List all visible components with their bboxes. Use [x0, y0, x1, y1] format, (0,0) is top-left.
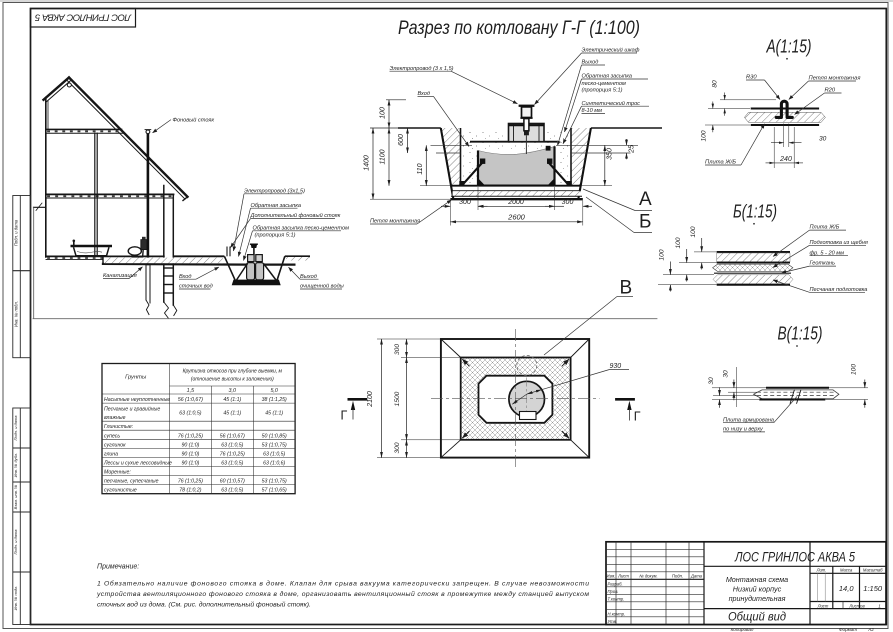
- svg-text:Взам. инв. №: Взам. инв. №: [13, 484, 18, 509]
- svg-text:63 (1:0,6): 63 (1:0,6): [263, 460, 285, 466]
- svg-text:Т.контр.: Т.контр.: [608, 597, 625, 602]
- svg-text:(пропорция 5:1): (пропорция 5:1): [255, 233, 296, 239]
- svg-text:2000: 2000: [507, 199, 524, 206]
- svg-text:Н.контр.: Н.контр.: [608, 612, 626, 617]
- svg-text:63 (1:0,5): 63 (1:0,5): [221, 488, 243, 494]
- svg-text:А(1:15): А(1:15): [766, 36, 812, 57]
- svg-text:сточных вод из дома. (См. рис.: сточных вод из дома. (См. рис. дополните…: [97, 601, 311, 609]
- svg-text:53 (1:0,75): 53 (1:0,75): [262, 442, 287, 448]
- svg-text:Монтажная схема: Монтажная схема: [726, 575, 788, 584]
- svg-text:110: 110: [417, 163, 424, 174]
- svg-text:Глинистые:: Глинистые:: [104, 424, 134, 430]
- svg-text:Подп. и дата: Подп. и дата: [14, 219, 19, 246]
- svg-text:100: 100: [659, 249, 666, 260]
- svg-text:суглинок: суглинок: [104, 442, 126, 448]
- svg-text:60 (1:0,57): 60 (1:0,57): [220, 479, 245, 485]
- svg-text:100: 100: [690, 226, 697, 237]
- svg-text:R30: R30: [746, 75, 757, 81]
- svg-text:глина: глина: [104, 451, 118, 457]
- svg-text:Г: Г: [341, 409, 348, 423]
- svg-text:Петля монтажная: Петля монтажная: [370, 219, 420, 225]
- svg-text:Низкий корпус: Низкий корпус: [733, 585, 782, 594]
- svg-text:А2: А2: [867, 627, 874, 632]
- svg-text:63 (1:0,5): 63 (1:0,5): [221, 460, 243, 466]
- svg-text:80: 80: [712, 80, 719, 88]
- svg-text:Б(1:15): Б(1:15): [733, 201, 777, 222]
- svg-text:(отношение высоты к заложению): (отношение высоты к заложению): [191, 377, 274, 383]
- svg-text:Подп.: Подп.: [672, 574, 683, 579]
- svg-text:240: 240: [779, 156, 792, 163]
- svg-text:Лит.: Лит.: [816, 568, 827, 573]
- svg-text:57 (1:0,65): 57 (1:0,65): [262, 488, 287, 494]
- svg-text:Разрез по котловану Г-Г (1:100: Разрез по котловану Г-Г (1:100): [398, 18, 640, 39]
- svg-text:45 (1:1): 45 (1:1): [223, 397, 241, 403]
- svg-text:песко-цементом: песко-цементом: [582, 81, 627, 87]
- svg-text:30: 30: [819, 135, 827, 142]
- svg-text:300: 300: [562, 199, 574, 206]
- svg-text:№ докум.: № докум.: [639, 574, 657, 579]
- svg-text:Инв. № подл.: Инв. № подл.: [13, 586, 18, 611]
- svg-text:Дата: Дата: [690, 574, 703, 579]
- svg-text:53 (1:0,75): 53 (1:0,75): [262, 479, 287, 485]
- svg-text:100: 100: [380, 107, 387, 119]
- svg-text:В: В: [620, 278, 633, 299]
- svg-text:Лист: Лист: [617, 574, 629, 579]
- svg-text:5,0: 5,0: [270, 388, 278, 394]
- svg-text:Петля монтажная: Петля монтажная: [809, 76, 861, 82]
- svg-text:1400: 1400: [364, 155, 371, 171]
- svg-text:песчаные, супесчаные: песчаные, супесчаные: [104, 479, 159, 485]
- svg-text:ЛОС ГРИНЛОС АКВА 5: ЛОС ГРИНЛОС АКВА 5: [34, 11, 132, 22]
- svg-text:38 (1:1,25): 38 (1:1,25): [262, 397, 287, 403]
- svg-text:Электрический шкаф: Электрический шкаф: [582, 47, 640, 54]
- svg-text:350: 350: [607, 148, 614, 160]
- svg-text:14,0: 14,0: [839, 584, 854, 593]
- svg-text:Песчаные и гравийные: Песчаные и гравийные: [104, 406, 160, 413]
- svg-text:Дополнительный фоновый стояк: Дополнительный фоновый стояк: [250, 212, 341, 219]
- svg-text:90 (1:0): 90 (1:0): [181, 442, 199, 448]
- svg-text:45 (1:1): 45 (1:1): [265, 411, 283, 417]
- svg-text:1500: 1500: [394, 391, 401, 406]
- svg-text:Синтетический трос: Синтетический трос: [582, 100, 641, 107]
- svg-text:300: 300: [394, 344, 401, 355]
- svg-text:300: 300: [459, 199, 471, 206]
- svg-text:90 (1:0): 90 (1:0): [181, 460, 199, 466]
- svg-text:63 (1:0,5): 63 (1:0,5): [221, 442, 243, 448]
- svg-text:Г: Г: [634, 410, 641, 424]
- svg-text:3,0: 3,0: [229, 388, 237, 394]
- svg-text:Формат: Формат: [839, 627, 857, 632]
- svg-text:Подп. и дата: Подп. и дата: [13, 415, 18, 441]
- svg-text:влажные: влажные: [104, 415, 126, 421]
- svg-text:Копировал: Копировал: [731, 627, 754, 632]
- svg-text:Изм.: Изм.: [607, 574, 616, 579]
- svg-text:ЛОС ГРИНЛОС АКВА 5: ЛОС ГРИНЛОС АКВА 5: [734, 550, 855, 565]
- svg-text:Моренные:: Моренные:: [104, 470, 131, 476]
- svg-text:30: 30: [723, 370, 730, 378]
- svg-text:Разраб.: Разраб.: [608, 582, 623, 587]
- svg-text:Листов: Листов: [848, 603, 865, 608]
- svg-text:Пров.: Пров.: [608, 589, 619, 594]
- svg-text:Грунты: Грунты: [125, 375, 147, 381]
- svg-text:1 Обязательно наличие фонового: 1 Обязательно наличие фонового стояка в …: [97, 580, 589, 588]
- svg-text:Крутизна откосов при глубине в: Крутизна откосов при глубине выемки, м: [183, 369, 283, 375]
- svg-text:Плита Ж/Б: Плита Ж/Б: [705, 160, 736, 166]
- svg-text:суглинистые: суглинистые: [104, 488, 137, 494]
- svg-text:Лессы и сухие лессовидные: Лессы и сухие лессовидные: [103, 460, 172, 466]
- svg-text:Фоновый стояк: Фоновый стояк: [173, 117, 215, 124]
- svg-text:50 (1:0,85): 50 (1:0,85): [262, 433, 287, 439]
- svg-text:Масштаб: Масштаб: [863, 568, 883, 573]
- svg-text:1: 1: [878, 603, 880, 608]
- svg-text:Общий вид: Общий вид: [728, 612, 786, 624]
- svg-text:R20: R20: [825, 88, 836, 94]
- svg-text:Инв. № подл.: Инв. № подл.: [14, 301, 19, 327]
- svg-text:76 (1:0,25): 76 (1:0,25): [178, 433, 203, 439]
- svg-text:100: 100: [701, 130, 708, 141]
- svg-text:930: 930: [610, 363, 622, 370]
- svg-text:78 (1:0,2): 78 (1:0,2): [179, 488, 201, 494]
- svg-text:100: 100: [851, 364, 858, 375]
- svg-text:А: А: [639, 189, 652, 210]
- svg-text:2600: 2600: [507, 212, 526, 221]
- svg-text:Б: Б: [639, 212, 651, 233]
- svg-text:63 (1:0,5): 63 (1:0,5): [179, 411, 201, 417]
- svg-text:Подп. и дата: Подп. и дата: [13, 529, 18, 555]
- svg-text:устройства вентиляционного фон: устройства вентиляционного фонового стоя…: [96, 590, 589, 598]
- svg-text:Лист: Лист: [817, 603, 829, 608]
- svg-text:(пропорция 5:1): (пропорция 5:1): [582, 88, 623, 94]
- svg-text:56 (1:0,67): 56 (1:0,67): [178, 397, 203, 403]
- svg-text:1100: 1100: [380, 149, 387, 164]
- svg-text:76 (1:0,25): 76 (1:0,25): [220, 451, 245, 457]
- svg-text:600: 600: [398, 134, 405, 146]
- svg-text:1,5: 1,5: [187, 388, 195, 394]
- svg-text:300: 300: [394, 442, 401, 453]
- svg-text:Инв. № дубл.: Инв. № дубл.: [13, 453, 18, 478]
- svg-text:очищенной воды: очищенной воды: [300, 283, 344, 290]
- svg-text:Насыпные неуплотненные: Насыпные неуплотненные: [104, 397, 170, 403]
- svg-text:30: 30: [708, 377, 715, 385]
- svg-text:супесь: супесь: [104, 433, 120, 439]
- svg-text:63 (1:0,5): 63 (1:0,5): [263, 451, 285, 457]
- svg-text:45 (1:1): 45 (1:1): [223, 411, 241, 417]
- svg-text:100: 100: [675, 237, 682, 248]
- svg-text:Примечание:: Примечание:: [97, 564, 139, 571]
- svg-text:2100: 2100: [367, 391, 374, 408]
- svg-text:90 (1:0): 90 (1:0): [181, 451, 199, 457]
- svg-text:1:150: 1:150: [863, 584, 883, 593]
- svg-text:В(1:15): В(1:15): [778, 323, 823, 344]
- svg-text:Утв.: Утв.: [608, 619, 618, 624]
- svg-text:принудительная: принудительная: [729, 594, 786, 603]
- svg-text:76 (1:0,25): 76 (1:0,25): [178, 479, 203, 485]
- svg-text:Масса: Масса: [840, 568, 853, 573]
- svg-text:56 (1:0,67): 56 (1:0,67): [220, 433, 245, 439]
- svg-text:25: 25: [629, 145, 636, 154]
